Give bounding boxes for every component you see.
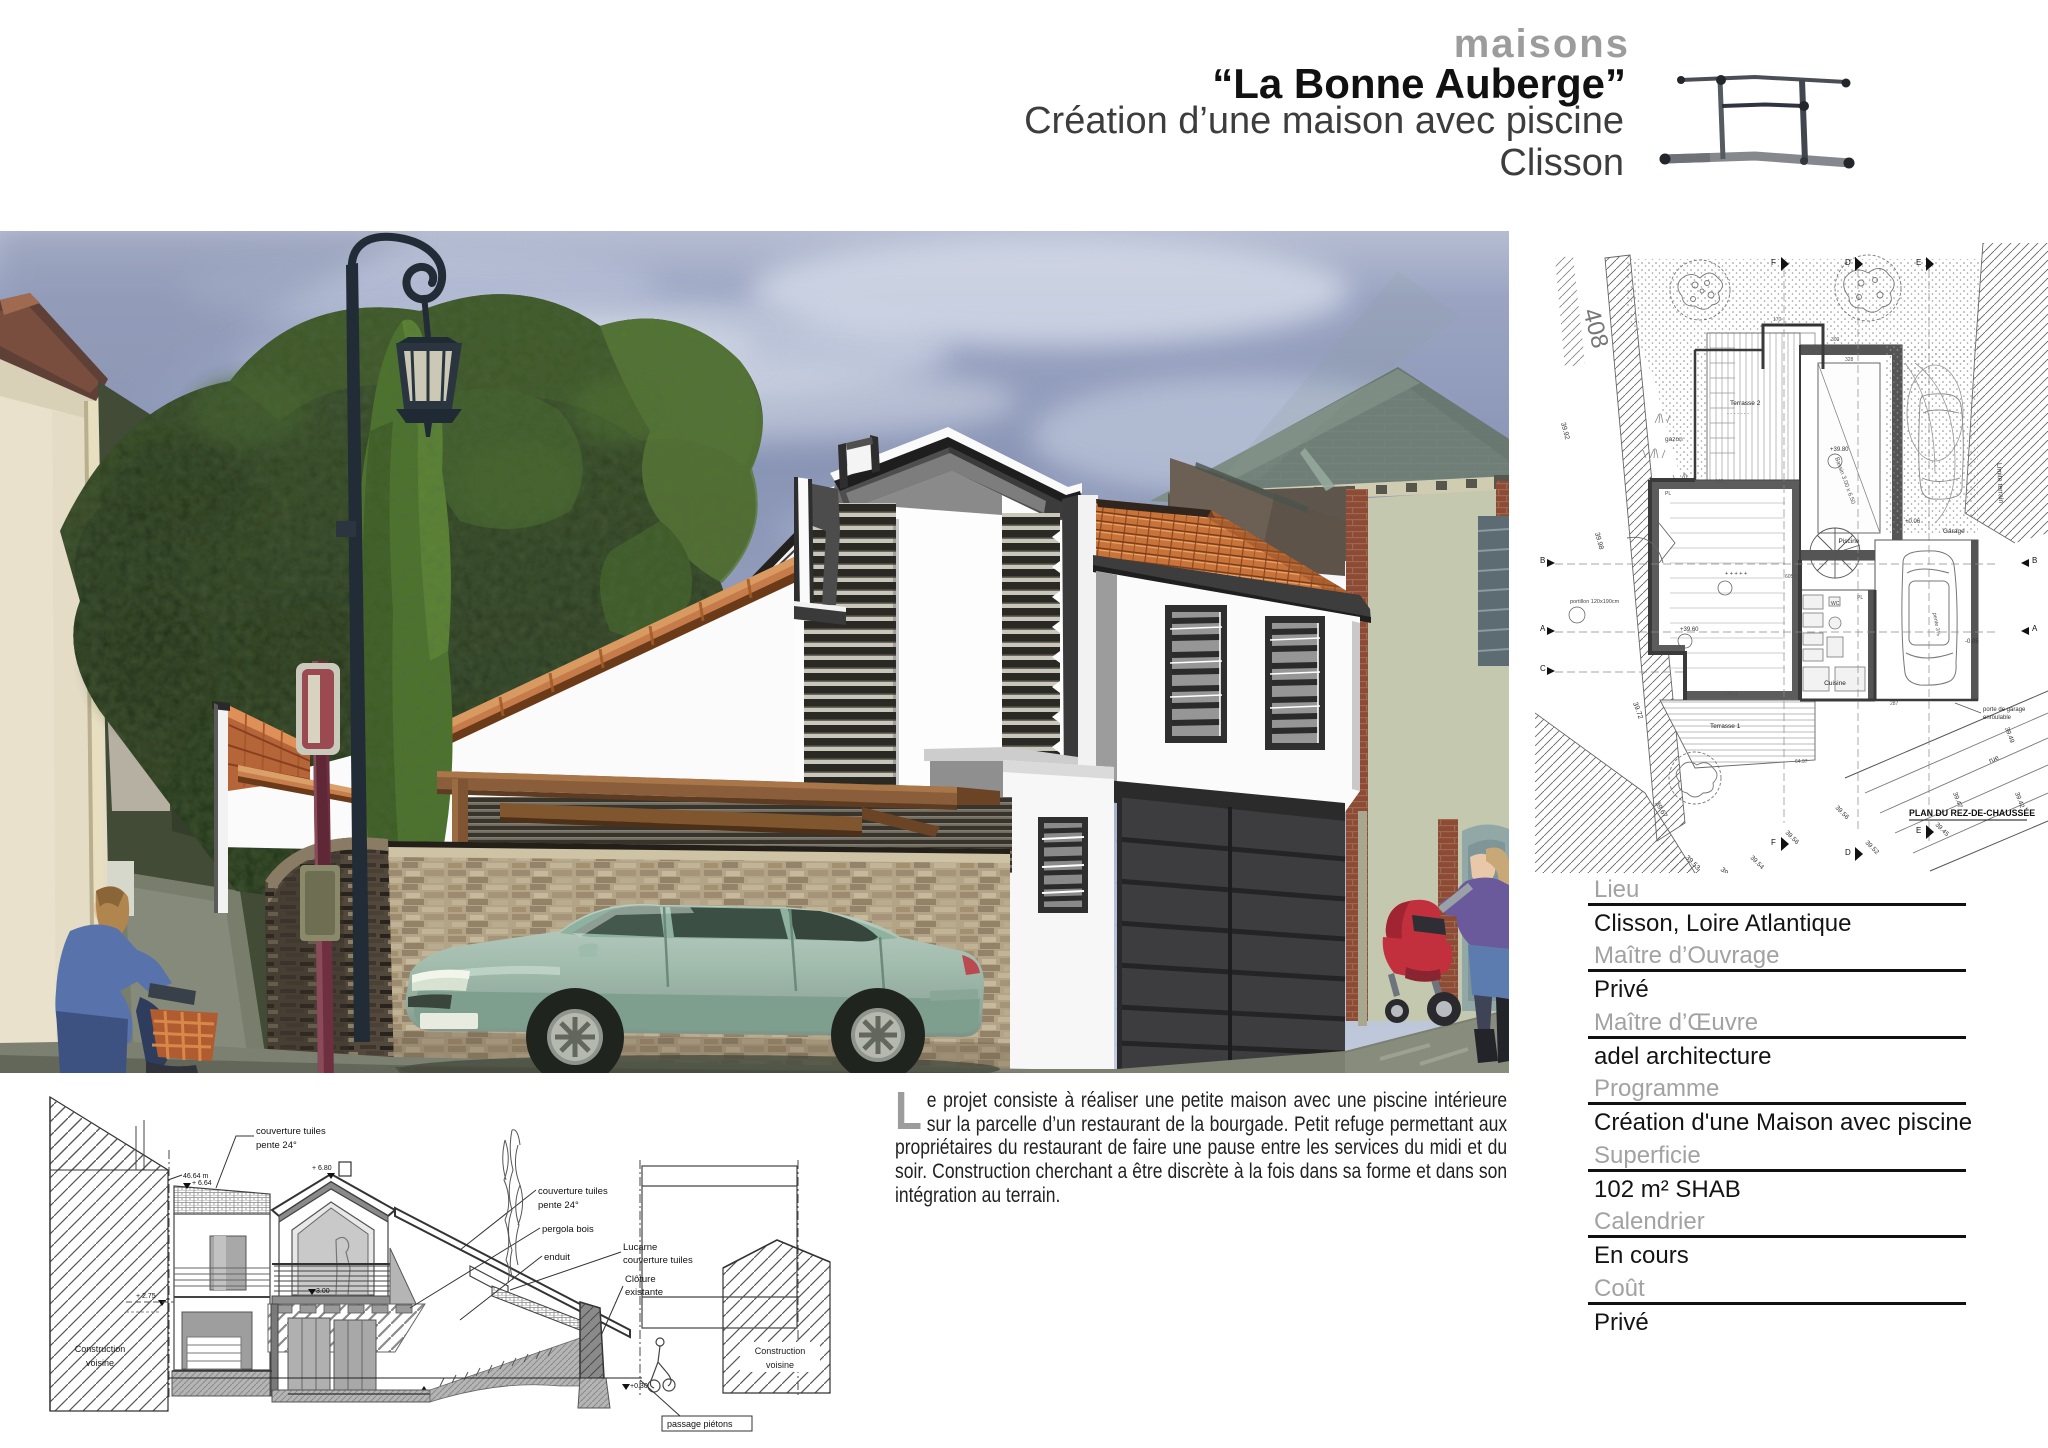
svg-text:287: 287 — [1890, 701, 1899, 707]
svg-text:39.42: 39.42 — [2013, 791, 2025, 809]
svg-text:F: F — [1771, 258, 1776, 267]
svg-text:existante: existante — [625, 1287, 663, 1298]
svg-text:328: 328 — [1845, 357, 1854, 363]
svg-text:140: 140 — [1715, 479, 1724, 485]
svg-text:39.52: 39.52 — [1864, 839, 1881, 856]
svg-text:D: D — [1845, 258, 1851, 267]
svg-text:D: D — [1845, 848, 1851, 857]
svg-text:Cuisine: Cuisine — [1824, 680, 1846, 687]
svg-text:39.92: 39.92 — [1559, 422, 1570, 441]
svg-text:- - - - - - -: - - - - - - - — [1727, 411, 1749, 417]
svg-text:605.5: 605.5 — [1785, 574, 1798, 580]
svg-text:F: F — [1771, 838, 1776, 847]
svg-text:Terrasse 1: Terrasse 1 — [1710, 723, 1741, 730]
svg-text:voisine: voisine — [766, 1360, 794, 1370]
svg-text:gazon: gazon — [1665, 436, 1683, 443]
svg-text:porte de garage: porte de garage — [1983, 707, 2026, 713]
svg-text:voisine: voisine — [86, 1358, 114, 1368]
svg-text:+ 6.64: + 6.64 — [192, 1180, 212, 1187]
svg-text:-0.05: -0.05 — [1965, 639, 1979, 645]
svg-text:E: E — [1916, 258, 1921, 267]
svg-text:portillon 120x190cm: portillon 120x190cm — [1570, 599, 1620, 605]
svg-text:39.98: 39.98 — [1593, 532, 1604, 551]
svg-text:3.00: 3.00 — [316, 1288, 330, 1295]
svg-text:C: C — [1540, 664, 1546, 673]
svg-text:enduit: enduit — [544, 1252, 570, 1263]
svg-text:+ 2.75: + 2.75 — [136, 1293, 156, 1300]
svg-text:+39.80: +39.80 — [1830, 447, 1849, 453]
svg-text:+ + + + +: + + + + + — [1725, 571, 1747, 577]
svg-text:E: E — [1916, 826, 1921, 835]
svg-text:B: B — [2032, 556, 2037, 565]
svg-text:39.45: 39.45 — [1934, 821, 1951, 838]
svg-text:A: A — [2032, 624, 2038, 633]
svg-text:46.64 m: 46.64 m — [183, 1173, 208, 1180]
svg-text:39.56: 39.56 — [1719, 866, 1736, 873]
svg-text:passage piétons: passage piétons — [667, 1419, 733, 1429]
svg-text:PL: PL — [1665, 491, 1671, 497]
svg-text:170: 170 — [1773, 317, 1782, 323]
svg-text:pente 24°: pente 24° — [256, 1140, 297, 1151]
svg-text:enroulable: enroulable — [1983, 715, 2012, 721]
svg-text:39.47: 39.47 — [1951, 791, 1963, 809]
svg-text:pente 24°: pente 24° — [538, 1200, 579, 1211]
svg-text:+ 6.80: + 6.80 — [312, 1165, 332, 1172]
svg-text:39.72: 39.72 — [1631, 701, 1644, 720]
svg-text:Construction: Construction — [755, 1346, 806, 1356]
svg-text:PLAN DU REZ-DE-CHAUSSÉE: PLAN DU REZ-DE-CHAUSSÉE — [1909, 808, 2035, 818]
svg-text:300: 300 — [1831, 337, 1840, 343]
svg-text:39.49: 39.49 — [2003, 726, 2015, 744]
svg-text:A: A — [1540, 624, 1546, 633]
svg-text:couverture tuiles: couverture tuiles — [623, 1255, 693, 1266]
svg-text:39.54: 39.54 — [1749, 854, 1766, 871]
svg-text:39.56: 39.56 — [1834, 804, 1851, 821]
svg-text:105.4: 105.4 — [1725, 691, 1738, 697]
svg-text:WC: WC — [1831, 601, 1840, 607]
svg-text:64.97: 64.97 — [1795, 759, 1808, 765]
svg-text:+39.60: +39.60 — [1680, 627, 1699, 633]
svg-text:Terrasse 2: Terrasse 2 — [1730, 400, 1761, 407]
svg-text:Construction: Construction — [75, 1344, 126, 1354]
svg-text:B: B — [1540, 556, 1545, 565]
svg-text:rue: rue — [1988, 754, 2000, 764]
svg-text:couverture tuiles: couverture tuiles — [538, 1186, 608, 1197]
svg-text:pergola bois: pergola bois — [542, 1224, 594, 1235]
svg-text:couverture tuiles: couverture tuiles — [256, 1126, 326, 1137]
